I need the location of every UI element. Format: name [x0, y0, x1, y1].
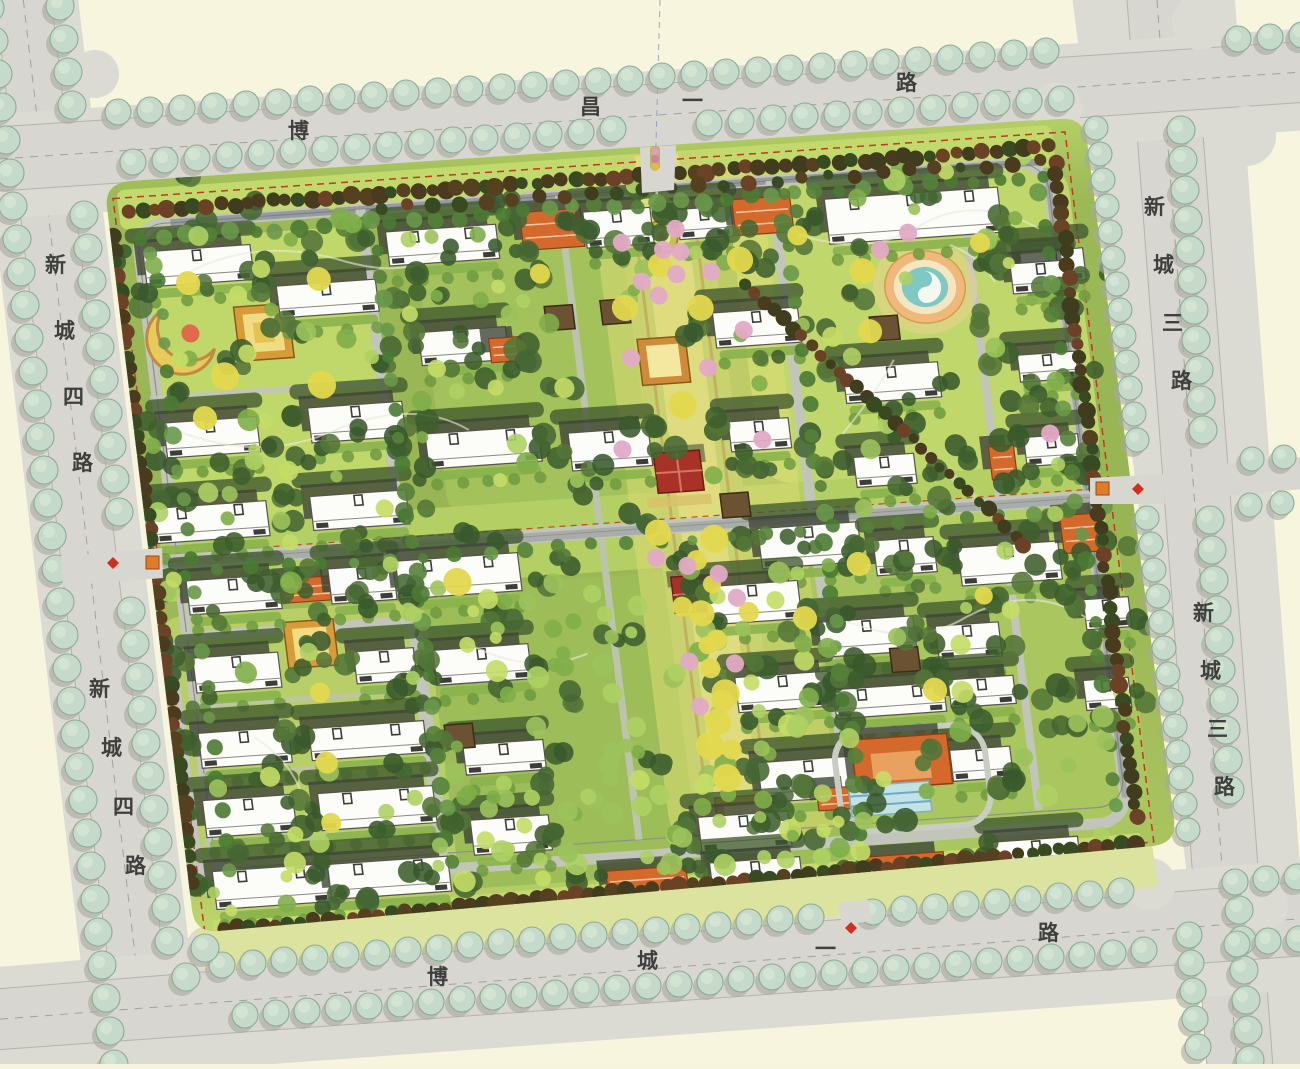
- svg-text:昌: 昌: [580, 96, 601, 119]
- svg-text:城: 城: [1153, 253, 1174, 277]
- svg-text:路: 路: [1038, 921, 1060, 945]
- svg-text:城: 城: [54, 319, 75, 343]
- svg-text:四: 四: [63, 386, 84, 409]
- svg-text:路: 路: [1171, 369, 1193, 393]
- svg-text:城: 城: [101, 736, 122, 760]
- svg-text:路: 路: [72, 451, 94, 475]
- svg-text:博: 博: [427, 965, 448, 989]
- svg-text:新: 新: [1144, 195, 1165, 219]
- svg-text:路: 路: [1214, 775, 1236, 799]
- svg-text:一: 一: [815, 938, 836, 961]
- svg-text:城: 城: [637, 949, 658, 973]
- svg-text:路: 路: [896, 71, 918, 95]
- svg-text:新: 新: [45, 253, 66, 277]
- svg-text:新: 新: [1193, 601, 1214, 625]
- svg-text:四: 四: [113, 796, 134, 819]
- svg-text:城: 城: [1200, 659, 1221, 683]
- svg-text:博: 博: [288, 119, 309, 143]
- svg-text:三: 三: [1162, 312, 1183, 335]
- svg-text:路: 路: [125, 854, 147, 878]
- svg-text:一: 一: [682, 90, 703, 113]
- svg-text:三: 三: [1207, 718, 1228, 741]
- svg-text:新: 新: [89, 677, 110, 701]
